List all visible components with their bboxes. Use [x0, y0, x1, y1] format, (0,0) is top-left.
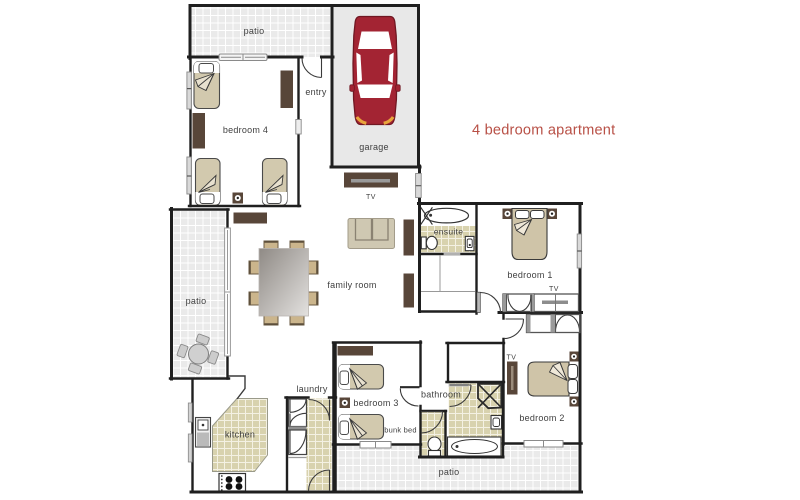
svg-text:TV: TV — [366, 194, 376, 201]
svg-text:kitchen: kitchen — [225, 430, 255, 440]
svg-text:bedroom 4: bedroom 4 — [223, 125, 268, 135]
svg-text:bunk bed: bunk bed — [384, 426, 416, 435]
svg-text:bedroom 1: bedroom 1 — [507, 270, 552, 280]
svg-text:4 bedroom apartment: 4 bedroom apartment — [472, 123, 615, 139]
svg-text:patio: patio — [439, 467, 460, 477]
svg-text:entry: entry — [305, 87, 327, 97]
svg-text:bedroom 2: bedroom 2 — [519, 413, 564, 423]
svg-text:bedroom 3: bedroom 3 — [353, 398, 398, 408]
svg-text:ensuite: ensuite — [434, 227, 464, 237]
svg-text:garage: garage — [359, 142, 389, 152]
svg-text:family room: family room — [327, 280, 376, 290]
svg-text:patio: patio — [244, 26, 265, 36]
svg-text:bathroom: bathroom — [421, 390, 461, 400]
svg-text:laundry: laundry — [296, 384, 328, 394]
svg-text:patio: patio — [186, 296, 207, 306]
svg-text:TV: TV — [507, 355, 517, 362]
svg-text:TV: TV — [549, 286, 559, 293]
